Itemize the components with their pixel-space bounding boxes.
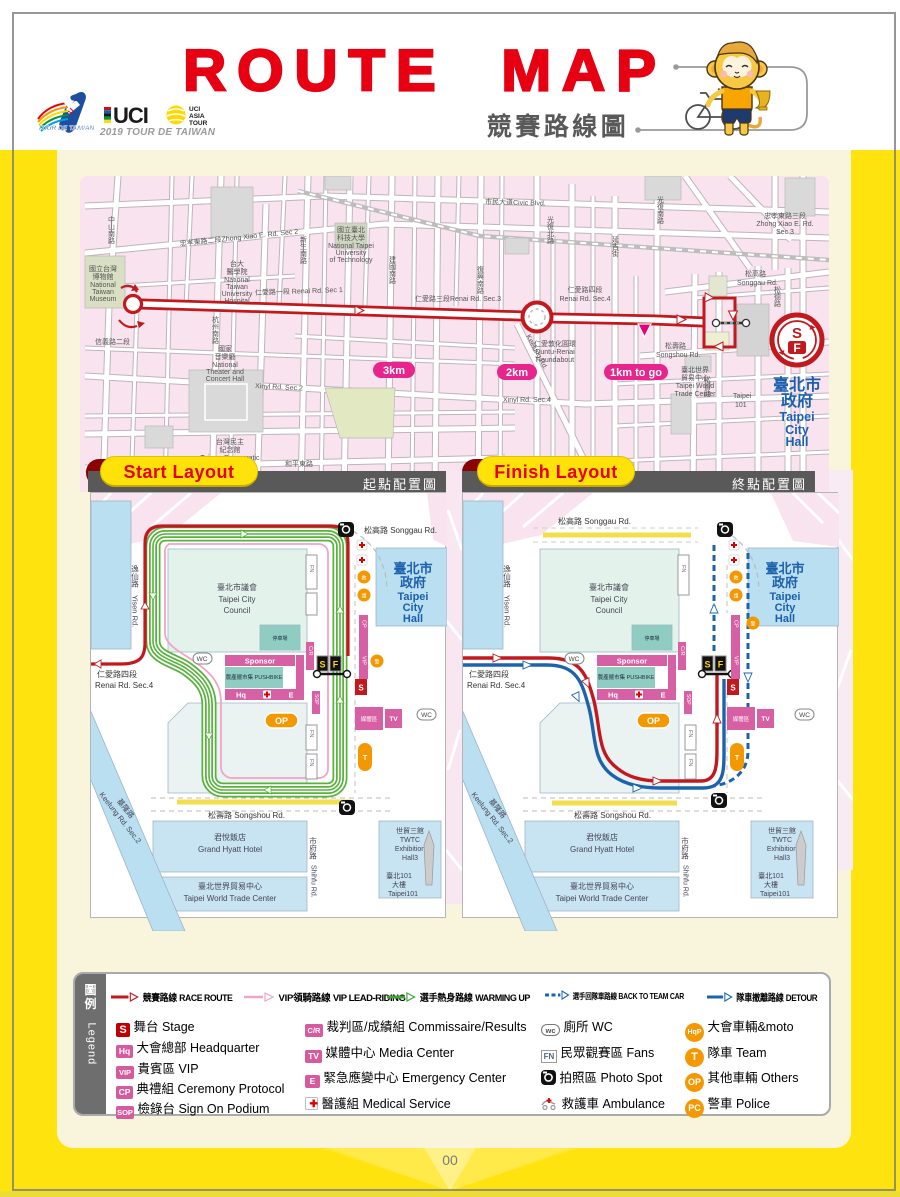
svg-text:醫學院: 醫學院 (227, 267, 248, 276)
svg-text:市府路: 市府路 (308, 836, 317, 860)
svg-text:建國南路: 建國南路 (389, 255, 397, 285)
svg-text:Songgau Rd.: Songgau Rd. (737, 280, 778, 287)
svg-text:OP: OP (275, 716, 288, 726)
svg-text:WC: WC (569, 656, 580, 663)
svg-text:松高路 Songgau Rd.: 松高路 Songgau Rd. (558, 516, 631, 526)
svg-text:TOUR: TOUR (189, 120, 208, 127)
svg-text:光復南路: 光復南路 (657, 195, 665, 225)
svg-text:S: S (319, 660, 325, 670)
svg-text:護: 護 (733, 593, 738, 600)
svg-text:Taiwan: Taiwan (92, 289, 114, 296)
svg-text:CP: CP (361, 620, 367, 628)
svg-text:WC: WC (799, 712, 810, 719)
svg-text:大樓: 大樓 (392, 880, 406, 889)
svg-text:FN: FN (680, 565, 686, 572)
svg-text:Hq: Hq (608, 691, 618, 700)
svg-text:仁愛路四段: 仁愛路四段 (568, 285, 603, 294)
svg-text:National Taipei: National Taipei (328, 243, 374, 250)
svg-text:OP: OP (647, 716, 660, 726)
svg-text:世貿三館: 世貿三館 (396, 826, 424, 835)
svg-text:Taipei101: Taipei101 (760, 891, 790, 898)
svg-text:Taipei: Taipei (733, 393, 752, 400)
svg-text:和平東路: 和平東路 (285, 459, 313, 468)
svg-text:National: National (212, 362, 238, 369)
svg-text:政府: 政府 (781, 391, 813, 410)
svg-text:農產擺市集 PUSHBIKE: 農產擺市集 PUSHBIKE (226, 673, 283, 681)
svg-text:臺北市議會: 臺北市議會 (217, 582, 257, 592)
svg-text:UCI: UCI (113, 103, 148, 128)
svg-text:逸仙路: 逸仙路 (130, 564, 139, 588)
svg-text:音樂廳: 音樂廳 (215, 352, 236, 361)
svg-text:Grand Hyatt Hotel: Grand Hyatt Hotel (570, 845, 634, 854)
svg-text:護: 護 (361, 593, 366, 600)
svg-text:Renai Rd. Sec.4: Renai Rd. Sec.4 (467, 681, 526, 690)
svg-text:SOP: SOP (313, 694, 319, 705)
svg-text:紀念館: 紀念館 (220, 445, 241, 454)
svg-text:Taipei World Trade Center: Taipei World Trade Center (184, 894, 277, 903)
svg-text:Theater and: Theater and (206, 369, 244, 376)
svg-text:Council: Council (224, 606, 251, 615)
svg-text:ASIA: ASIA (189, 113, 205, 120)
svg-text:臺北市: 臺北市 (765, 561, 804, 576)
svg-text:松智路: 松智路 (704, 375, 712, 398)
svg-text:E: E (288, 691, 293, 700)
svg-text:SOP: SOP (685, 694, 691, 705)
svg-text:Concert Hall: Concert Hall (206, 376, 245, 383)
svg-text:Hall: Hall (775, 613, 795, 625)
svg-text:University: University (336, 250, 367, 257)
svg-text:Taipei World Trade Center: Taipei World Trade Center (556, 894, 649, 903)
svg-text:Sponsor: Sponsor (245, 657, 275, 666)
svg-text:WC: WC (197, 656, 208, 663)
svg-text:救: 救 (361, 575, 366, 582)
svg-text:松壽路 Songshou Rd.: 松壽路 Songshou Rd. (574, 810, 651, 820)
svg-text:世貿三館: 世貿三館 (768, 826, 796, 835)
svg-text:CP: CP (733, 620, 739, 628)
svg-text:農產擺市集 PUSHBIKE: 農產擺市集 PUSHBIKE (598, 673, 655, 681)
svg-text:Yisen Rd.: Yisen Rd. (131, 595, 140, 627)
svg-text:TOUR DE TAIWAN: TOUR DE TAIWAN (38, 125, 94, 132)
svg-text:F: F (333, 660, 339, 670)
svg-text:延吉街: 延吉街 (612, 235, 620, 258)
svg-text:臺北市: 臺北市 (773, 375, 821, 394)
svg-text:TV: TV (761, 716, 770, 723)
svg-text:Renai Rd. Sec.4: Renai Rd. Sec.4 (560, 296, 611, 303)
svg-text:Grand Hyatt Hotel: Grand Hyatt Hotel (198, 845, 262, 854)
svg-text:Hall: Hall (403, 613, 423, 625)
svg-text:FN: FN (308, 730, 314, 737)
svg-text:中山南路: 中山南路 (108, 215, 116, 245)
svg-text:TWTC: TWTC (400, 837, 420, 844)
svg-text:Zhong Xiao E. Rd.: Zhong Xiao E. Rd. (756, 221, 813, 228)
svg-text:Sec 3: Sec 3 (776, 229, 794, 236)
svg-text:National: National (224, 277, 250, 284)
svg-text:台灣民主: 台灣民主 (216, 437, 244, 446)
svg-text:松高路: 松高路 (745, 269, 766, 278)
svg-text:Renai Rd. Sec.4: Renai Rd. Sec.4 (95, 681, 154, 690)
svg-text:杭州南路: 杭州南路 (212, 315, 220, 345)
svg-text:國立台灣: 國立台灣 (89, 264, 117, 273)
svg-text:松德路: 松德路 (774, 285, 782, 308)
svg-text:停車場: 停車場 (272, 635, 287, 642)
svg-text:Hq: Hq (236, 691, 246, 700)
svg-text:復興南路: 復興南路 (477, 265, 485, 295)
svg-text:Taipei: Taipei (779, 410, 814, 424)
svg-text:National: National (90, 282, 116, 289)
svg-text:光復北路: 光復北路 (547, 215, 555, 245)
svg-text:警: 警 (374, 659, 379, 666)
svg-text:T: T (735, 755, 740, 762)
svg-text:T: T (363, 755, 368, 762)
svg-text:Museum: Museum (90, 296, 117, 303)
svg-text:2km: 2km (506, 367, 528, 379)
svg-text:Hall3: Hall3 (402, 855, 418, 862)
svg-text:C/R: C/R (679, 646, 685, 656)
svg-text:E: E (660, 691, 665, 700)
svg-text:臺北市: 臺北市 (393, 561, 432, 576)
svg-text:Exhibition: Exhibition (395, 846, 425, 853)
svg-text:仁愛敦化圓環: 仁愛敦化圓環 (534, 339, 576, 348)
svg-text:政府: 政府 (772, 575, 798, 590)
svg-text:信義路二段: 信義路二段 (95, 337, 130, 346)
svg-text:C/R: C/R (307, 646, 313, 656)
svg-text:Shihfu Rd.: Shihfu Rd. (310, 865, 317, 898)
svg-text:Council: Council (596, 606, 623, 615)
svg-text:Yisen Rd.: Yisen Rd. (503, 595, 512, 627)
svg-text:1km to go: 1km to go (610, 367, 662, 379)
svg-text:FN: FN (308, 565, 314, 572)
svg-text:仁愛路四段: 仁愛路四段 (97, 669, 137, 679)
svg-text:臺北世界貿易中心: 臺北世界貿易中心 (198, 881, 262, 891)
svg-text:Xinyl Rd. Sec.4: Xinyl Rd. Sec.4 (503, 397, 551, 404)
svg-text:停車場: 停車場 (644, 635, 659, 642)
svg-text:S: S (358, 684, 364, 693)
svg-text:科技大學: 科技大學 (337, 233, 365, 242)
svg-text:臺北101: 臺北101 (758, 871, 784, 880)
svg-text:忠孝東路三段: 忠孝東路三段 (764, 211, 806, 220)
svg-text:逸仙路: 逸仙路 (502, 564, 511, 588)
svg-text:Songshou Rd.: Songshou Rd. (656, 352, 700, 359)
svg-text:警: 警 (750, 621, 755, 628)
svg-text:Taipei City: Taipei City (591, 595, 628, 604)
svg-text:Hall: Hall (786, 435, 809, 449)
svg-text:君悅飯店: 君悅飯店 (214, 832, 246, 842)
svg-text:Shihfu Rd.: Shihfu Rd. (682, 865, 689, 898)
svg-text:University: University (222, 291, 253, 298)
svg-text:新生南路: 新生南路 (300, 235, 308, 265)
svg-text:S: S (704, 660, 710, 670)
svg-text:救: 救 (733, 575, 738, 582)
svg-text:國立臺北: 國立臺北 (337, 225, 365, 234)
svg-text:臺北市議會: 臺北市議會 (589, 582, 629, 592)
svg-text:松壽路 Songshou Rd.: 松壽路 Songshou Rd. (208, 810, 285, 820)
svg-text:FN: FN (687, 759, 693, 766)
svg-text:Sponsor: Sponsor (617, 657, 647, 666)
svg-text:媒體區: 媒體區 (361, 715, 378, 723)
svg-text:TWTC: TWTC (772, 837, 792, 844)
svg-text:松高路 Songgau Rd.: 松高路 Songgau Rd. (364, 525, 437, 535)
svg-text:大樓: 大樓 (764, 880, 778, 889)
svg-text:臺北101: 臺北101 (386, 871, 412, 880)
svg-text:博物館: 博物館 (93, 272, 114, 281)
svg-text:FN: FN (308, 759, 314, 766)
svg-text:君悅飯店: 君悅飯店 (586, 832, 618, 842)
svg-text:Hall3: Hall3 (774, 855, 790, 862)
svg-text:WC: WC (421, 712, 432, 719)
svg-text:F: F (793, 341, 800, 355)
svg-text:S: S (792, 325, 802, 342)
svg-text:of Technology: of Technology (329, 257, 373, 264)
svg-text:國家: 國家 (218, 344, 232, 353)
svg-text:FN: FN (687, 730, 693, 737)
svg-text:Taipei City: Taipei City (219, 595, 256, 604)
svg-text:Exhibition: Exhibition (767, 846, 797, 853)
svg-text:臺北世界貿易中心: 臺北世界貿易中心 (570, 881, 634, 891)
svg-text:仁愛路四段: 仁愛路四段 (469, 669, 509, 679)
svg-text:仁愛路三段Renai Rd. Sec.3: 仁愛路三段Renai Rd. Sec.3 (415, 294, 501, 303)
svg-text:TV: TV (389, 716, 398, 723)
svg-text:Hospital: Hospital (224, 298, 250, 305)
svg-text:Taiwan: Taiwan (226, 284, 248, 291)
svg-text:政府: 政府 (400, 575, 426, 590)
svg-text:101: 101 (735, 402, 747, 409)
svg-text:松壽路: 松壽路 (665, 341, 686, 350)
svg-text:媒體區: 媒體區 (733, 715, 750, 723)
svg-text:VIP: VIP (361, 656, 367, 665)
svg-text:Taipei101: Taipei101 (388, 891, 418, 898)
svg-text:台大: 台大 (230, 259, 244, 268)
svg-text:3km: 3km (383, 365, 405, 377)
svg-text:VIP: VIP (733, 656, 739, 665)
svg-text:市府路: 市府路 (680, 836, 689, 860)
svg-text:F: F (718, 660, 724, 670)
svg-text:S: S (730, 684, 736, 693)
svg-text:UCI: UCI (189, 106, 200, 113)
svg-text:臺北世界: 臺北世界 (681, 365, 709, 374)
